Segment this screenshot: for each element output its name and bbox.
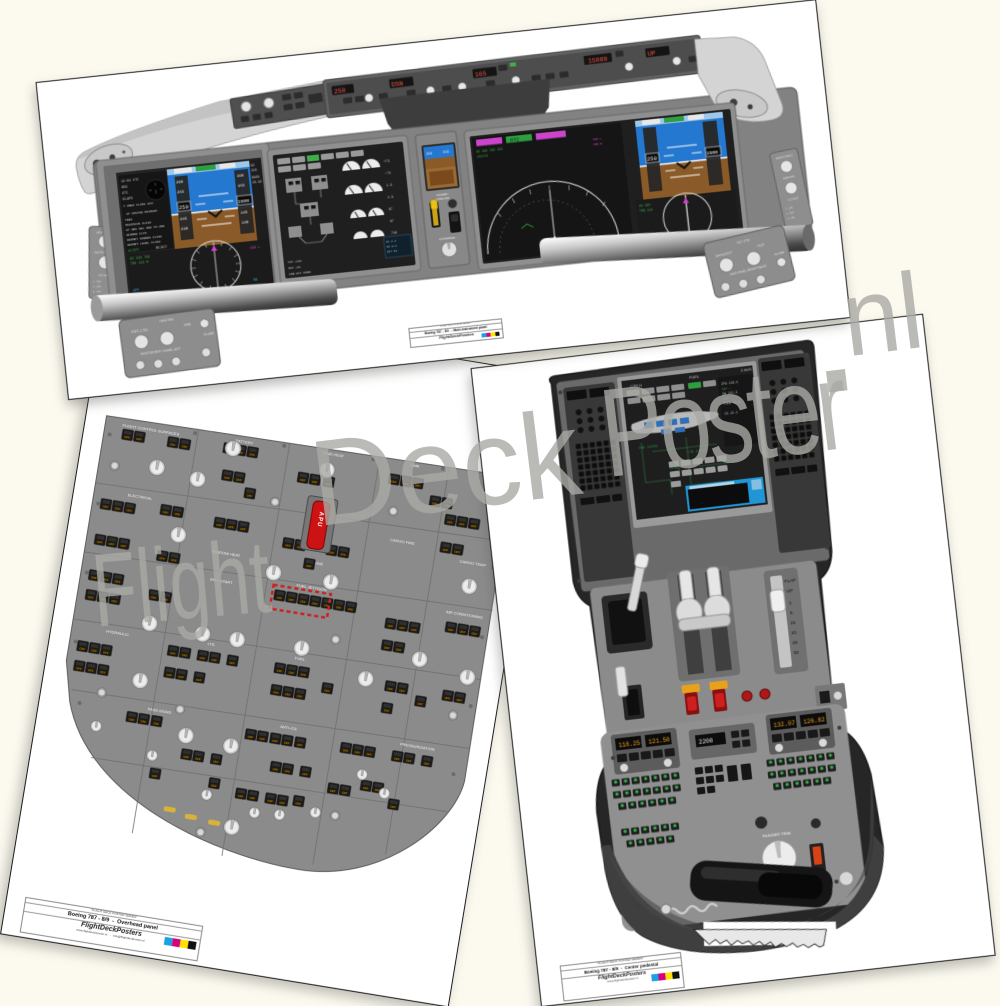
svg-text:HDG: HDG <box>121 186 127 191</box>
svg-text:155: 155 <box>238 184 246 189</box>
svg-text:GS: GS <box>250 163 254 167</box>
svg-text:240: 240 <box>181 227 189 232</box>
svg-text:072: 072 <box>510 137 520 144</box>
svg-text:3 - 434: 3 - 434 <box>93 290 101 293</box>
svg-text:UTC: UTC <box>122 192 128 197</box>
svg-text:250: 250 <box>647 155 658 163</box>
svg-text:1.9: 1.9 <box>387 195 393 200</box>
svg-text:DSN: DSN <box>391 80 404 88</box>
svg-text:1500: 1500 <box>706 149 718 156</box>
svg-text:160: 160 <box>237 174 245 179</box>
svg-text:+73: +73 <box>383 159 389 164</box>
svg-text:165: 165 <box>475 70 488 78</box>
svg-text:+70: +70 <box>385 171 391 176</box>
svg-text:250: 250 <box>426 152 433 157</box>
svg-text:250: 250 <box>178 203 189 211</box>
svg-text:1.9: 1.9 <box>386 183 392 188</box>
svg-text:250: 250 <box>334 87 347 95</box>
svg-text:87: 87 <box>389 207 393 211</box>
svg-text:245: 245 <box>180 218 188 223</box>
svg-text:87: 87 <box>390 219 394 223</box>
svg-text:260: 260 <box>176 181 184 186</box>
svg-text:320: 320 <box>251 168 257 173</box>
svg-text:255: 255 <box>177 191 185 196</box>
svg-text:1 - 234: 1 - 234 <box>93 280 101 283</box>
svg-text:145: 145 <box>240 211 248 216</box>
svg-text:LTS: LTS <box>207 641 215 647</box>
svg-text:2 - 334: 2 - 334 <box>93 285 101 288</box>
svg-text:UP: UP <box>647 50 656 58</box>
svg-text:015: 015 <box>443 151 450 156</box>
svg-text:740: 740 <box>391 231 397 236</box>
svg-text:UP: UP <box>786 588 793 594</box>
svg-text:140: 140 <box>241 221 249 226</box>
svg-text:1500: 1500 <box>238 198 250 205</box>
